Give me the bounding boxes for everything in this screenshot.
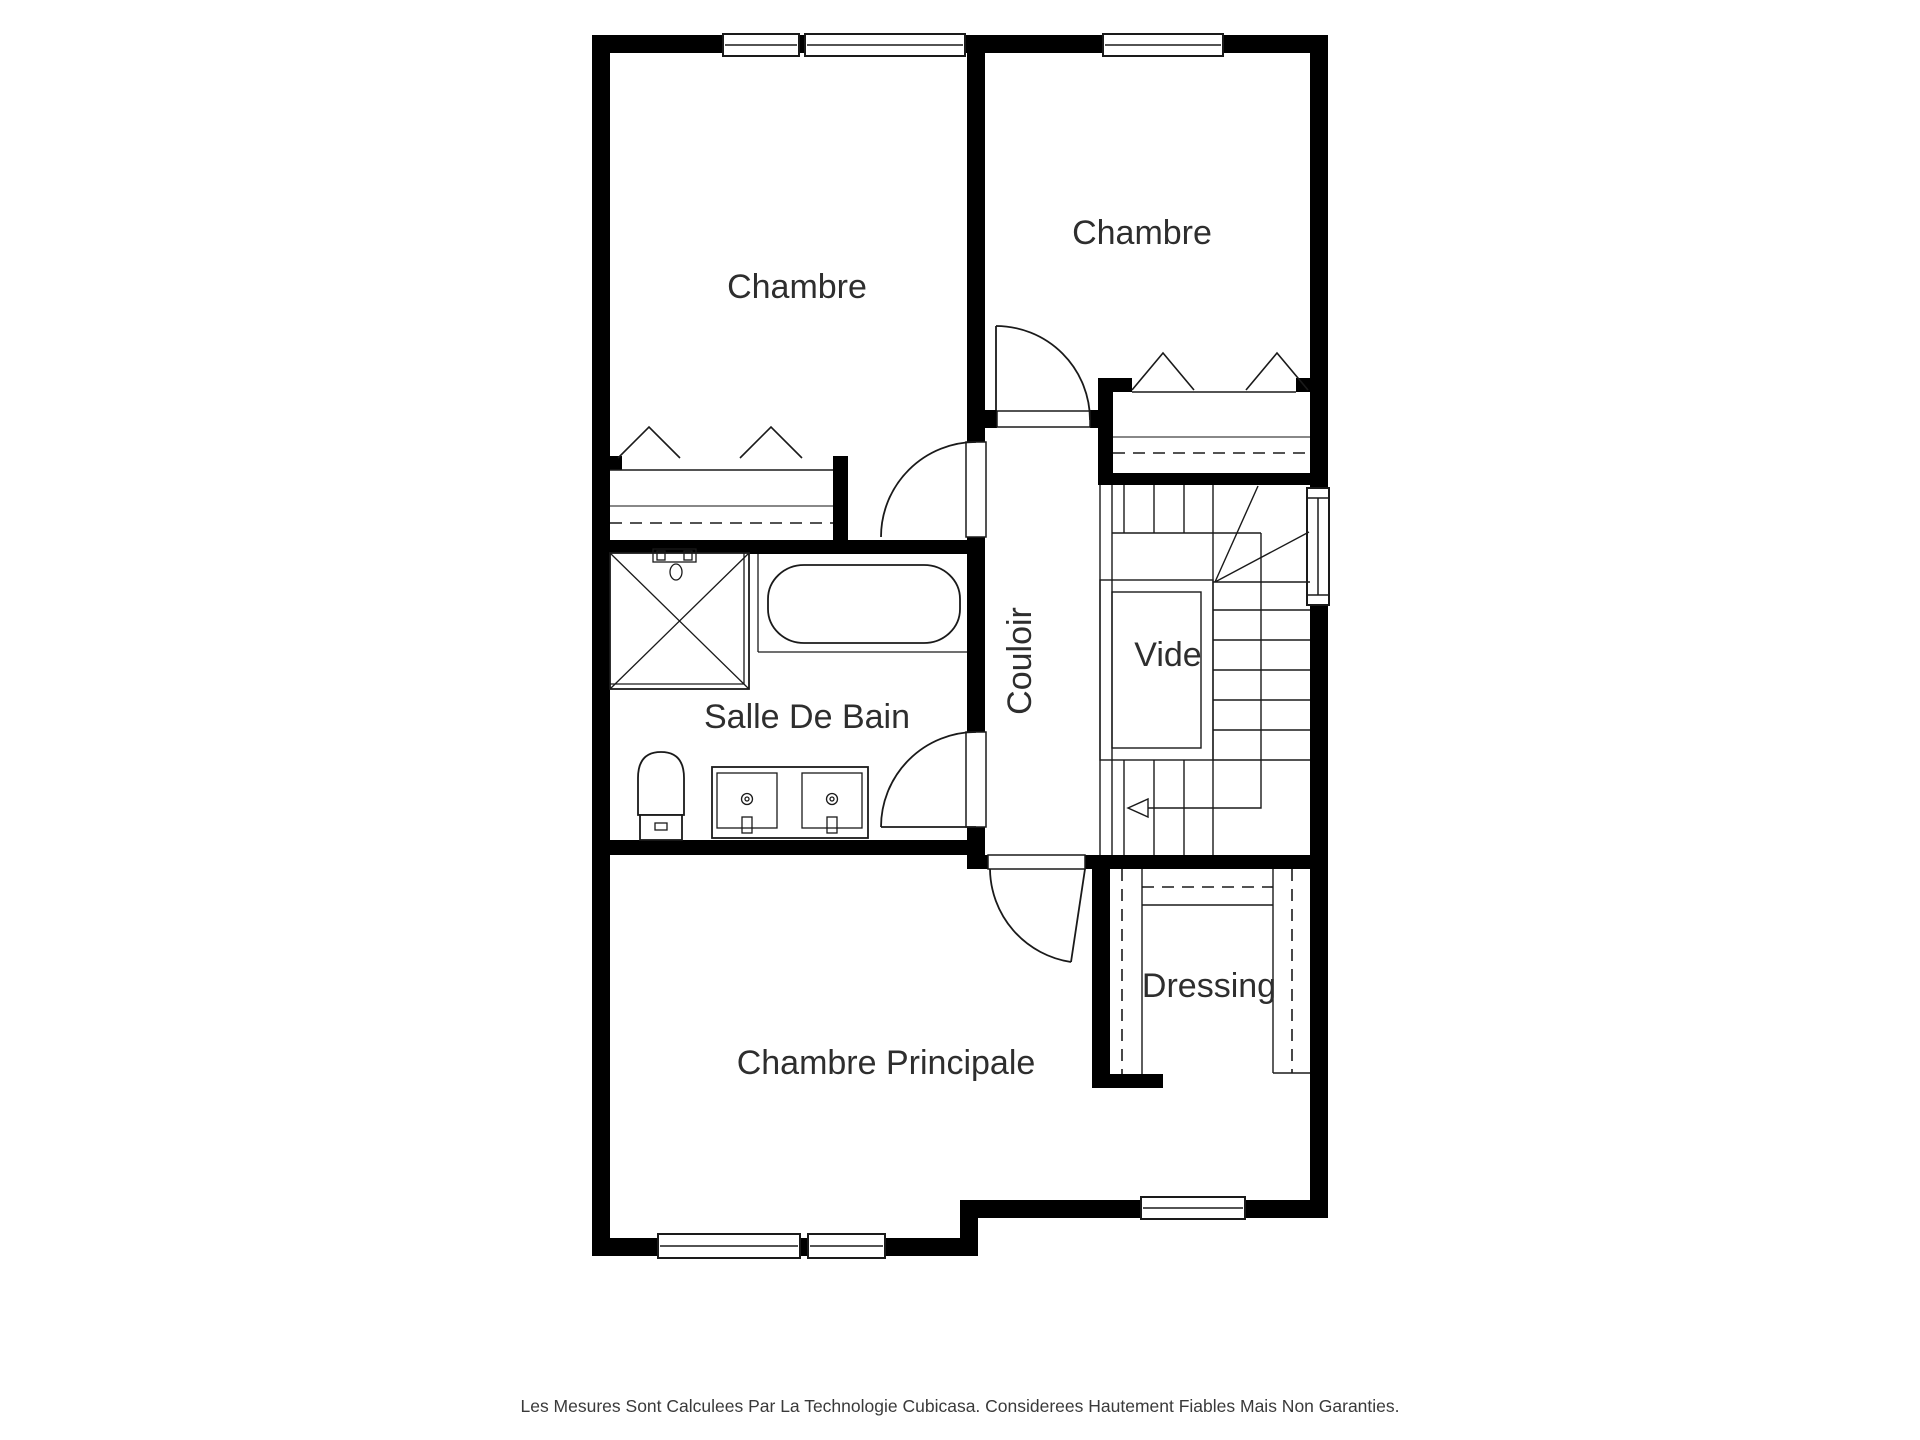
closet-hanger-icon <box>740 427 802 458</box>
room-label-chambre-principale: Chambre Principale <box>737 1044 1036 1082</box>
wall-exterior-bottom-jog <box>960 1200 978 1256</box>
door-frame-bedroom1 <box>966 442 986 537</box>
door-frame-bedroom2 <box>997 411 1090 427</box>
bathroom-fixtures <box>610 549 967 840</box>
door-frame-master-bedroom <box>988 855 1085 869</box>
closet-hanger-icon <box>618 427 680 458</box>
room-label-chambre-1: Chambre <box>727 268 867 306</box>
door-swing-master-bedroom <box>990 869 1071 962</box>
wall-partition-bedrooms <box>967 35 985 427</box>
wall-bathroom-north <box>592 540 985 554</box>
door-leaf-master-bedroom <box>1071 869 1085 962</box>
footer-disclaimer: Les Mesures Sont Calculees Par La Techno… <box>520 1396 1399 1416</box>
floorplan-page: Chambre Chambre Salle De Bain Couloir Vi… <box>0 0 1920 1440</box>
stair-winder-diagonal <box>1215 486 1258 582</box>
floorplan-drawing: Chambre Chambre Salle De Bain Couloir Vi… <box>0 0 1920 1440</box>
room-label-salle-de-bain: Salle De Bain <box>704 698 910 736</box>
door-swing-bathroom <box>881 732 976 827</box>
stair-winder-diagonal <box>1215 532 1309 582</box>
wall-exterior-left <box>592 35 610 1256</box>
wall-bedroom2-closet-stub-west <box>1098 378 1132 392</box>
wall-bedroom2-closet-west <box>1098 378 1113 485</box>
closet-hanger-icon <box>1132 353 1194 390</box>
wall-dressing-stub <box>1092 1074 1163 1088</box>
door-swing-bedroom2 <box>996 326 1090 420</box>
room-label-vide: Vide <box>1134 636 1201 674</box>
wall-bedroom1-closet-east <box>833 456 848 553</box>
room-label-couloir: Couloir <box>1001 607 1039 715</box>
wall-dressing-west <box>1092 869 1110 1088</box>
wall-bathroom-south <box>592 840 985 855</box>
room-label-dressing: Dressing <box>1142 967 1276 1005</box>
toilet-bowl <box>638 752 684 815</box>
wall-bedroom2-south-stub-west <box>967 410 997 428</box>
toilet-tank <box>640 815 682 840</box>
door-frame-bathroom <box>966 732 986 827</box>
bathtub <box>768 565 960 643</box>
stair-direction-arrow-icon <box>1128 799 1148 817</box>
vanity-counter <box>712 767 868 838</box>
wall-stairwell-top <box>1098 473 1310 485</box>
wall-bedroom1-closet-stub <box>608 456 622 470</box>
door-swing-bedroom1 <box>881 442 976 537</box>
room-label-chambre-2: Chambre <box>1072 214 1212 252</box>
room-labels: Chambre Chambre Salle De Bain Couloir Vi… <box>704 214 1276 1082</box>
wall-exterior-right <box>1310 35 1328 1218</box>
stairs <box>1100 485 1310 855</box>
